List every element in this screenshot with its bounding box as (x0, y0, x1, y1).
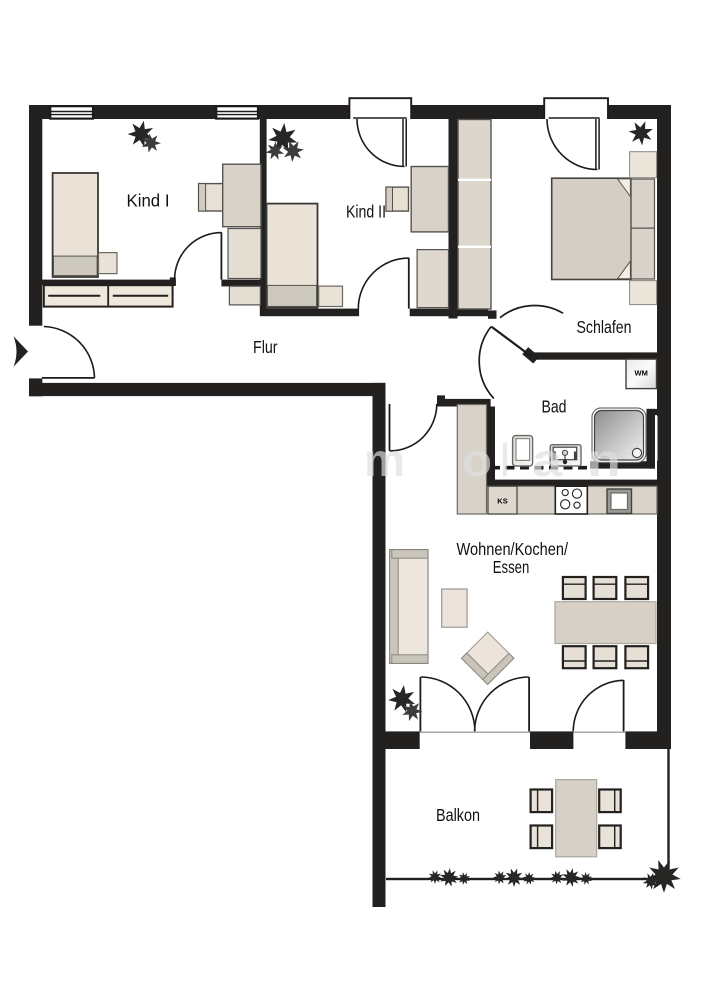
svg-text:Kind I: Kind I (127, 191, 170, 211)
svg-text:Wohnen/Kochen/: Wohnen/Kochen/ (457, 539, 569, 559)
svg-text:Balkon: Balkon (436, 805, 480, 825)
svg-text:Essen: Essen (493, 557, 530, 577)
svg-text:Flur: Flur (253, 337, 278, 357)
svg-text:n: n (587, 434, 621, 486)
svg-text:Bad: Bad (542, 397, 567, 417)
svg-text:KS: KS (497, 497, 507, 506)
svg-text:l: l (501, 434, 509, 486)
svg-text:Kind II: Kind II (346, 202, 386, 222)
svg-text:WM: WM (635, 369, 648, 378)
svg-text:a: a (532, 434, 562, 486)
svg-text:Schlafen: Schlafen (577, 317, 632, 337)
svg-text:m: m (364, 434, 405, 486)
svg-text:o: o (462, 434, 492, 486)
